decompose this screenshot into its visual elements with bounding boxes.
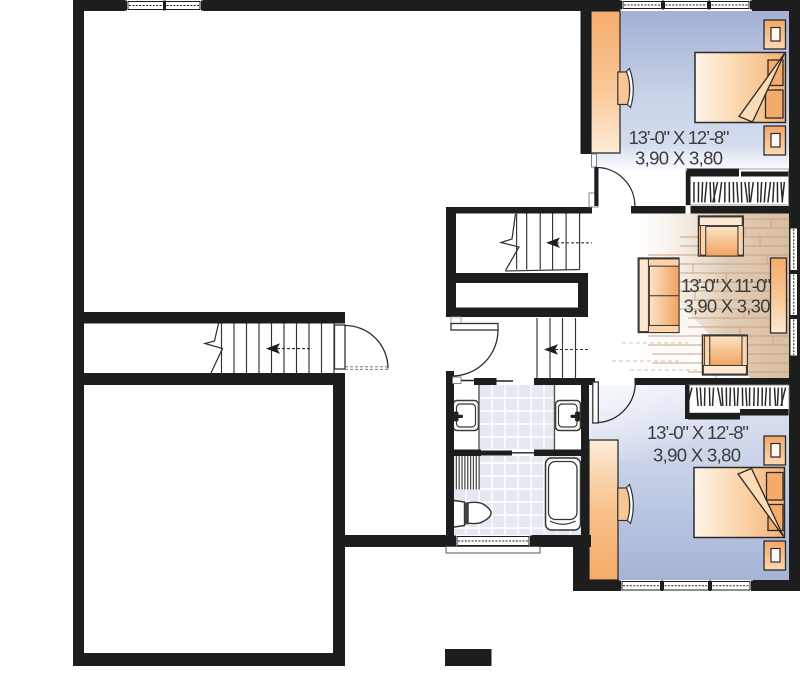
svg-text:13’-0" X 12’-8": 13’-0" X 12’-8"	[629, 127, 730, 148]
svg-text:13’-0" X 12’-8": 13’-0" X 12’-8"	[647, 422, 749, 443]
svg-text:3,90 X 3,80: 3,90 X 3,80	[635, 148, 723, 169]
svg-text:3,90 X 3,80: 3,90 X 3,80	[653, 445, 741, 466]
svg-text:3,90 X 3,30: 3,90 X 3,30	[684, 296, 771, 317]
svg-text:13’-0" X 11’-0": 13’-0" X 11’-0"	[681, 275, 771, 296]
